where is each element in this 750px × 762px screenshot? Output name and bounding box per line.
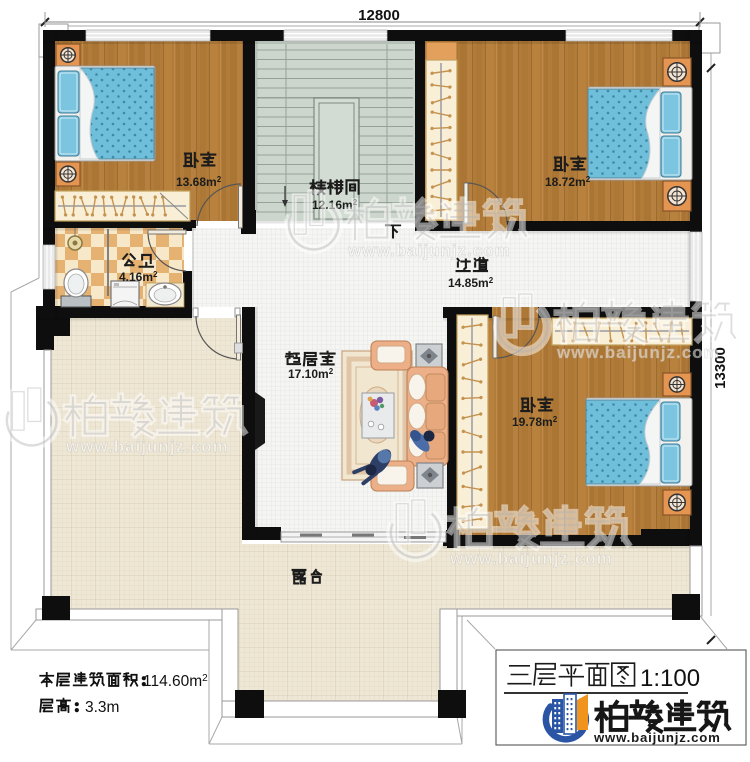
svg-text:18.72m2: 18.72m2 [545, 175, 591, 189]
svg-text:3.3m: 3.3m [85, 699, 119, 716]
svg-text:1:100: 1:100 [640, 665, 700, 692]
svg-text:www.baijunjz.com: www.baijunjz.com [65, 437, 229, 456]
svg-text:12800: 12800 [358, 7, 400, 24]
svg-text:4.16m2: 4.16m2 [119, 270, 158, 284]
svg-text:17.10m2: 17.10m2 [288, 367, 334, 381]
svg-text:14.85m2: 14.85m2 [448, 276, 494, 290]
svg-text:www.baijunjz.com: www.baijunjz.com [556, 343, 720, 362]
svg-text:13.68m2: 13.68m2 [176, 175, 222, 189]
svg-text:19.78m2: 19.78m2 [512, 415, 558, 429]
svg-text:www.baijunjz.com: www.baijunjz.com [593, 730, 721, 745]
svg-text:www.baijunjz.com: www.baijunjz.com [449, 549, 613, 568]
svg-text:www.baijunjz.com: www.baijunjz.com [347, 241, 511, 260]
svg-text:114.60m2: 114.60m2 [143, 673, 208, 690]
